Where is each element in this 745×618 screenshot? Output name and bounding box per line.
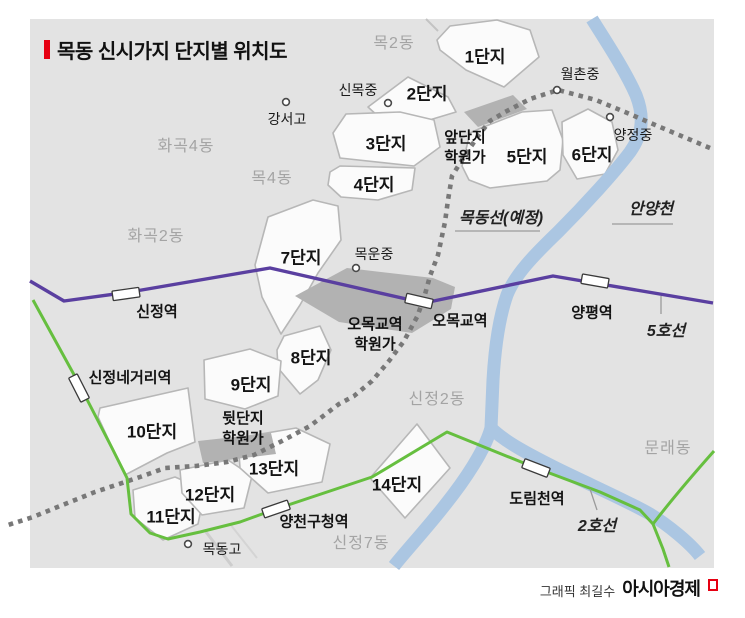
sinmok-middle-marker: [385, 100, 392, 107]
complex-label-5: 5단지: [507, 143, 548, 168]
station-label-omokgyo: 오목교역: [432, 310, 487, 331]
district-label-sinjeong2: 신정2동: [408, 385, 465, 409]
school-label-mokwoon: 목운중: [355, 244, 394, 264]
complex-label-9: 9단지: [231, 371, 272, 396]
map-title: 목동 신시가지 단지별 위치도: [44, 35, 287, 64]
station-label-yangcheon-office: 양천구청역: [279, 511, 348, 532]
academy-label-omokgyo-line1: 오목교역: [347, 315, 402, 335]
academy-label-front: 앞단지 학원가: [444, 128, 485, 168]
school-label-yangjeong: 양정중: [614, 125, 653, 145]
school-label-sinmok: 신목중: [339, 80, 378, 100]
school-label-wolchon: 월촌중: [561, 64, 600, 84]
complex-label-12: 12단지: [185, 481, 235, 506]
complex-label-10: 10단지: [127, 418, 177, 443]
district-boundary-line: [426, 19, 438, 31]
subway-line2-branch-north: [653, 451, 714, 524]
complex-label-13: 13단지: [249, 455, 299, 480]
academy-label-omokgyo: 오목교역 학원가: [347, 315, 402, 355]
river-label: 안양천: [629, 195, 673, 219]
academy-label-omokgyo-line2: 학원가: [347, 335, 402, 355]
complex-label-2: 2단지: [407, 80, 448, 105]
complex-label-7: 7단지: [281, 244, 322, 269]
station-label-dorimcheon: 도림천역: [509, 488, 564, 509]
title-accent-bar: [44, 40, 50, 59]
complex-label-1: 1단지: [465, 43, 506, 68]
yangpyeong-station-marker: [581, 274, 609, 288]
complex-label-4: 4단지: [354, 171, 395, 196]
station-label-yangpyeong: 양평역: [571, 302, 612, 323]
complex-label-11: 11단지: [146, 503, 195, 528]
title-text: 목동 신시가지 단지별 위치도: [57, 35, 287, 64]
credit-brand-logo: 아시아경제: [622, 575, 700, 601]
mokdong-high-marker: [185, 541, 192, 548]
district-label-mok2: 목2동: [373, 29, 414, 53]
school-label-mokdong-high: 목동고: [203, 539, 242, 559]
district-label-mullae: 문래동: [644, 434, 691, 458]
complex-label-6: 6단지: [572, 141, 613, 166]
academy-label-back-line2: 학원가: [222, 429, 263, 449]
district-label-mok4: 목4동: [251, 164, 292, 188]
academy-label-front-line1: 앞단지: [444, 128, 485, 148]
wolchon-middle-marker: [554, 87, 561, 94]
school-label-gangseo: 강서고: [268, 109, 307, 129]
mokwoon-middle-marker: [353, 265, 360, 272]
academy-label-front-line2: 학원가: [444, 148, 485, 168]
sinjeong-crossroads-station-marker: [69, 374, 90, 402]
line2-label: 2호선: [578, 512, 616, 536]
district-label-sinjeong7: 신정7동: [332, 529, 389, 553]
complex-label-3: 3단지: [366, 130, 407, 155]
academy-label-back: 뒷단지 학원가: [222, 409, 263, 449]
station-label-sinjeong: 신정역: [136, 301, 177, 322]
credit-byline: 그래픽 최길수: [540, 581, 615, 601]
gangseo-high-marker: [283, 99, 290, 106]
station-label-sinjeong-crossroads: 신정네거리역: [89, 367, 172, 388]
sinjeong-station-marker: [112, 287, 140, 300]
mokdong-map-infographic: 목동 신시가지 단지별 위치도 목2동 화곡4동 목4동 화곡2동 신정2동 신…: [0, 0, 745, 618]
line5-label: 5호선: [647, 317, 685, 341]
academy-label-back-line1: 뒷단지: [222, 409, 263, 429]
complex-label-8: 8단지: [291, 344, 332, 369]
credit: 그래픽 최길수 아시아경제: [540, 575, 718, 601]
mokdong-line-label: 목동선(예정): [459, 204, 543, 228]
district-label-hwagok4: 화곡4동: [157, 132, 214, 156]
yangjeong-middle-marker: [607, 114, 614, 121]
brand-red-mark-icon: [708, 579, 718, 591]
complex-label-14: 14단지: [372, 471, 422, 496]
district-label-hwagok2: 화곡2동: [127, 222, 184, 246]
